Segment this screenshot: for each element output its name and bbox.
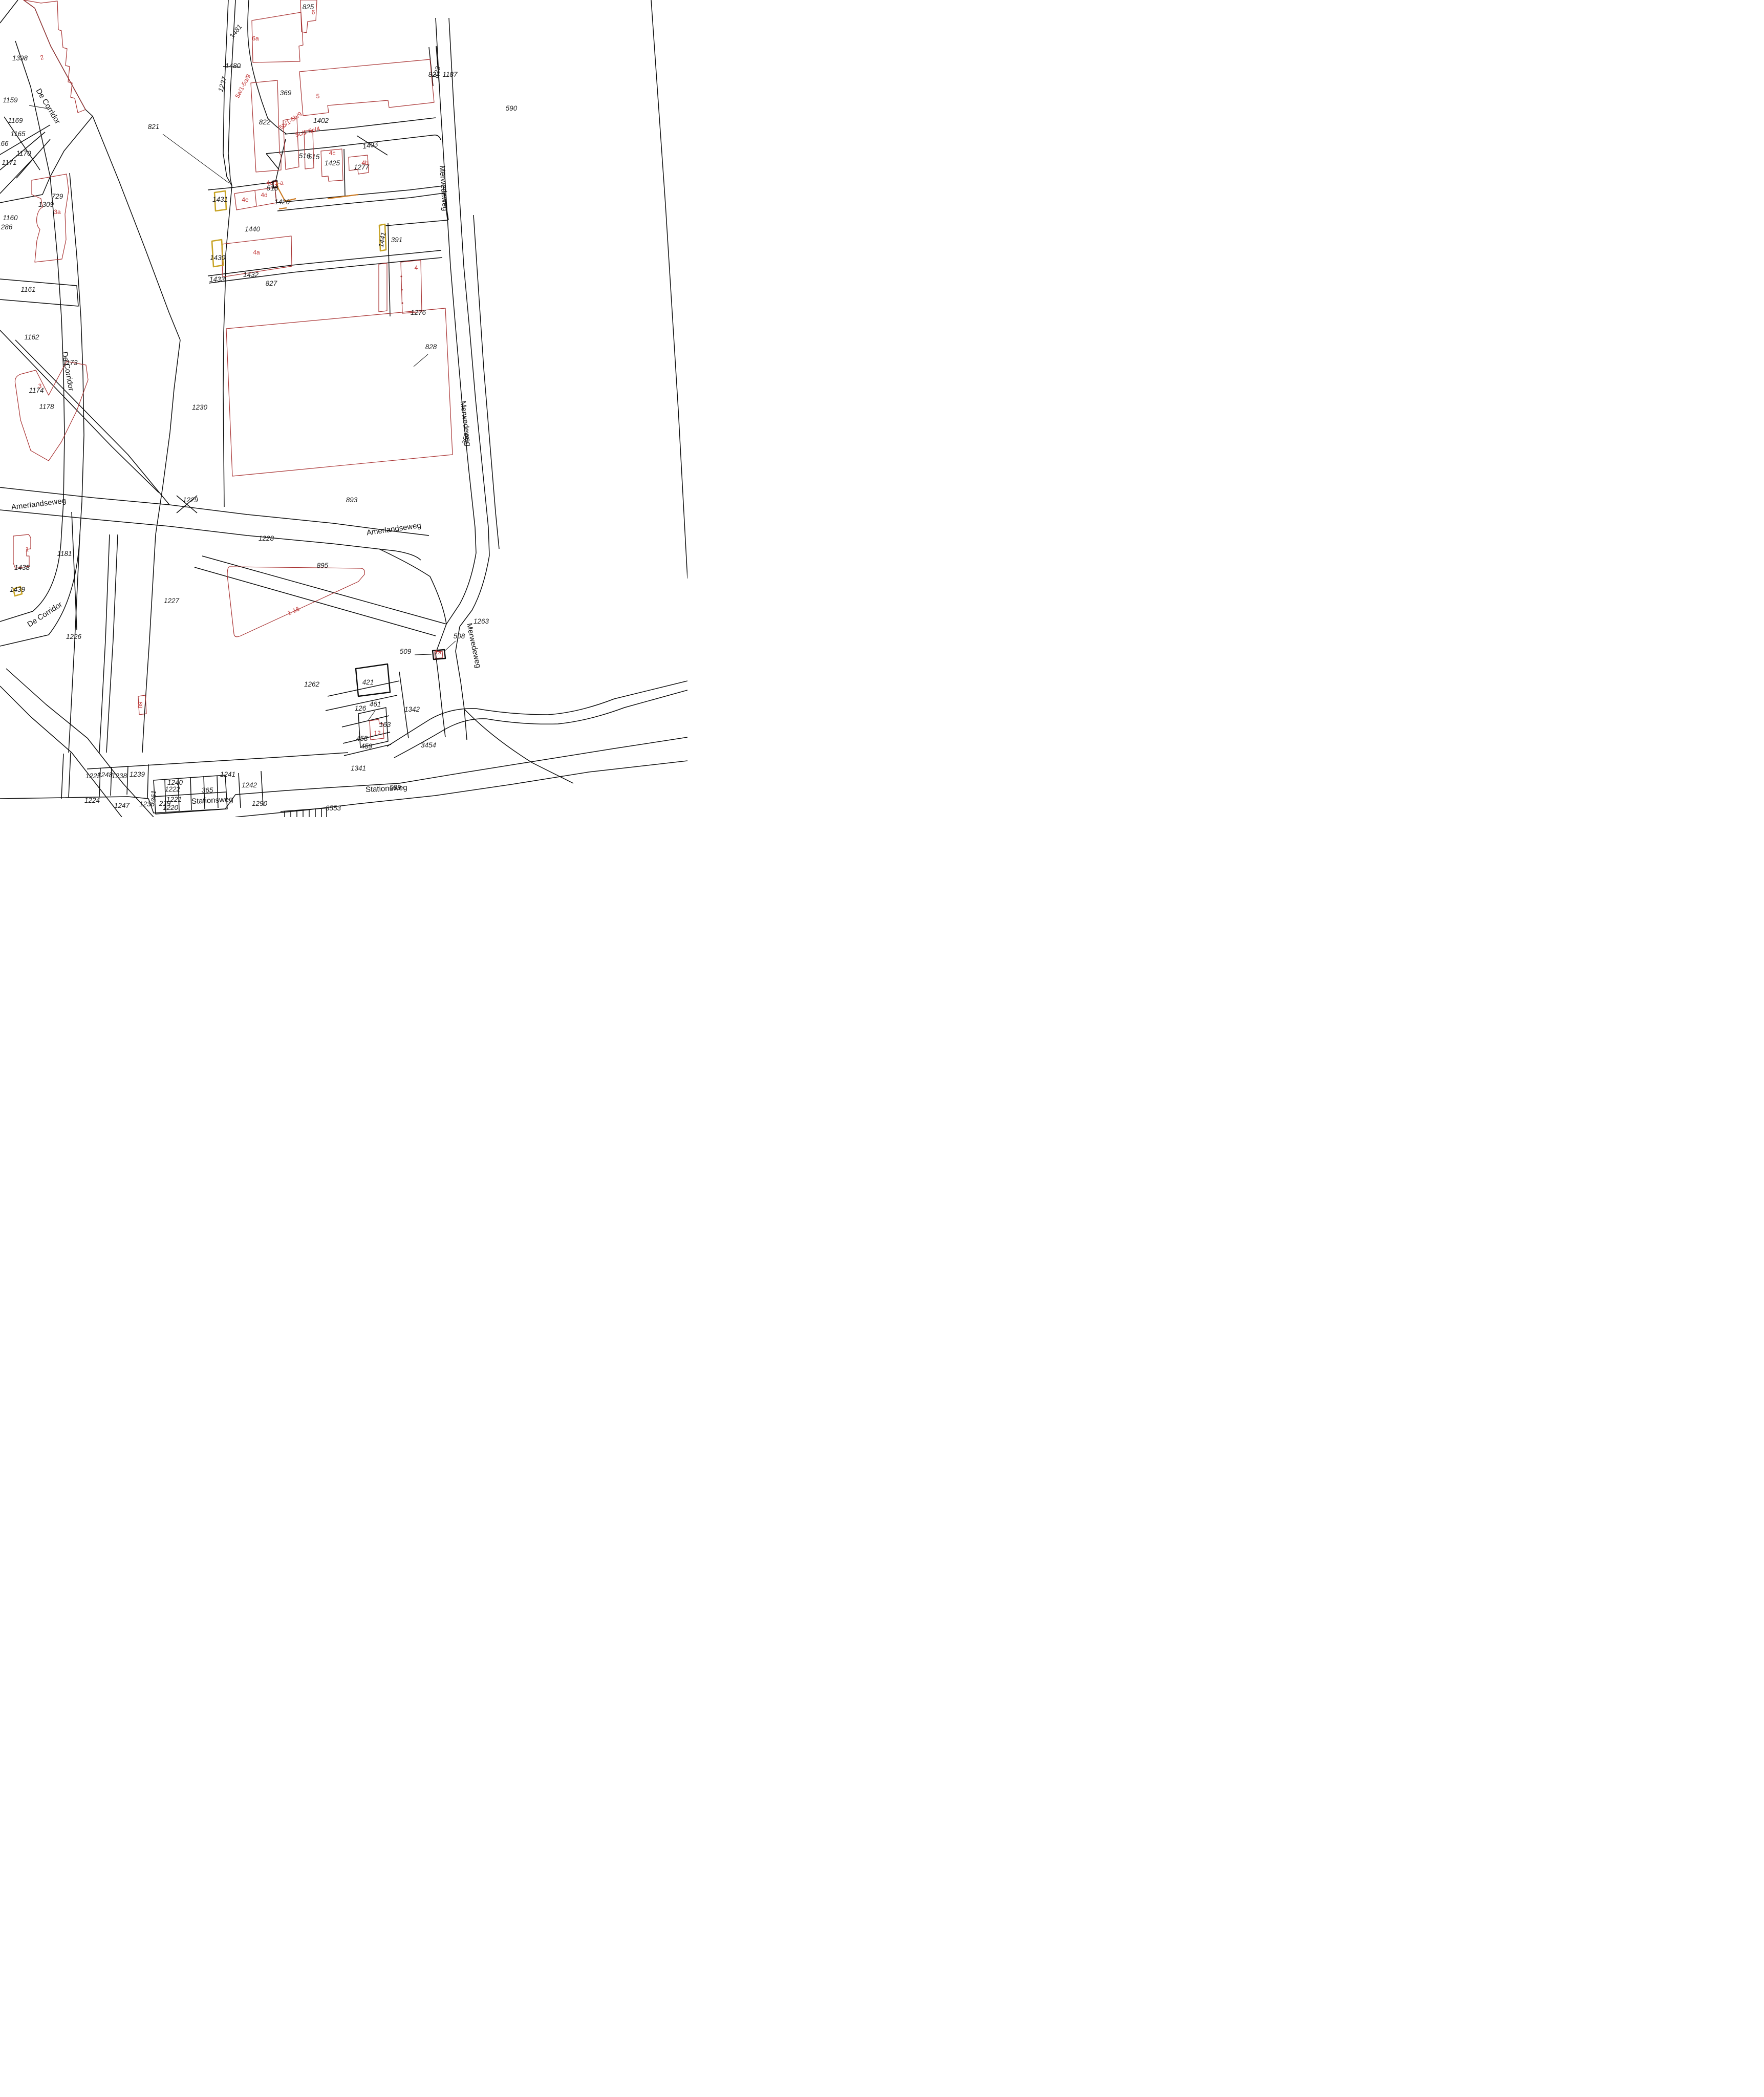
parcel-number: 1239 xyxy=(130,771,145,778)
parcel-number: 1222 xyxy=(165,785,181,793)
parcel-number: 421 xyxy=(362,678,374,686)
parcel-number: 590 xyxy=(506,104,518,112)
parcel-number: 1227 xyxy=(164,597,180,605)
parcel-number: 1247 xyxy=(114,802,130,809)
house-number: 6 xyxy=(312,9,315,16)
parcel-number: 1342 xyxy=(404,705,420,713)
parcel-number: 1262 xyxy=(304,680,320,688)
parcel-number: 1276 xyxy=(411,309,426,316)
parcel-number: 1430 xyxy=(210,254,226,262)
parcel-number: 1181 xyxy=(57,550,72,558)
house-number: 1a xyxy=(435,649,442,656)
parcel-number: 1160 xyxy=(3,214,18,222)
parcel-number: 1170 xyxy=(16,149,31,157)
parcel-number: 821 xyxy=(148,123,160,131)
parcel-number: 1224 xyxy=(84,797,100,804)
parcel-number: 1228 xyxy=(259,534,274,542)
parcel-number: 1263 xyxy=(474,617,489,625)
parcel-number: 1402 xyxy=(313,117,329,124)
house-number: 4 xyxy=(415,264,418,271)
parcel-number: 515 xyxy=(308,153,320,161)
parcel-number: 509 xyxy=(400,648,412,655)
parcel-number: 1229 xyxy=(183,496,199,504)
house-number: 4b xyxy=(361,159,369,166)
parcel-number: 1171 xyxy=(2,159,16,166)
parcel-number: 1425 xyxy=(325,159,340,167)
parcel-number: 1241 xyxy=(220,771,235,778)
house-number: 5 xyxy=(316,93,320,100)
parcel-number: 126 xyxy=(355,704,367,712)
parcel-number: 1431 xyxy=(212,196,228,203)
parcel-number: 1248 xyxy=(97,771,113,779)
parcel-number: 1236 xyxy=(139,800,155,808)
house-number: 3a xyxy=(54,208,61,216)
parcel-number: 1440 xyxy=(245,225,261,233)
survey-dot xyxy=(401,289,402,290)
parcel-number: 365 xyxy=(202,786,213,794)
house-number: 4a xyxy=(253,249,260,256)
parcel-number: 1290 xyxy=(252,800,268,807)
parcel-number: 163 xyxy=(379,721,391,729)
parcel-number: 1432 xyxy=(243,271,259,279)
parcel-number: 1230 xyxy=(192,403,208,411)
parcel-number: 1480 xyxy=(225,62,241,70)
parcel-number: 828 xyxy=(425,343,437,351)
parcel-number: 1341 xyxy=(351,764,366,772)
parcel-number: 1161 xyxy=(20,286,35,293)
parcel-number: 1238 xyxy=(112,772,127,780)
parcel-number: 822 xyxy=(259,118,271,126)
cadastral-map: 1398115911691165116611701171729130911602… xyxy=(0,0,687,817)
house-number: 1 xyxy=(26,546,29,553)
parcel-number: 391 xyxy=(391,236,403,244)
parcel-number: 3454 xyxy=(421,741,436,749)
house-number: 4e xyxy=(242,196,249,203)
parcel-number: 458 xyxy=(356,735,368,742)
parcel-number: 729 xyxy=(52,192,63,200)
parcel-number: 1438 xyxy=(14,564,30,571)
parcel-number: 1242 xyxy=(242,781,257,789)
house-number: 4c/1-a xyxy=(266,179,284,186)
parcel-number: 1220 xyxy=(163,804,179,811)
survey-dot xyxy=(401,302,403,304)
parcel-number: 895 xyxy=(317,562,329,569)
parcel-number: 1439 xyxy=(10,586,26,593)
parcel-number: 1226 xyxy=(66,633,82,640)
parcel-number: 1165 xyxy=(10,130,26,138)
parcel-number: 286 xyxy=(1,223,13,231)
parcel-number: 1426 xyxy=(274,198,290,206)
parcel-number: 1169 xyxy=(8,117,23,124)
parcel-number: 827 xyxy=(266,280,277,287)
house-number: 4c xyxy=(329,149,336,157)
house-number: 89 xyxy=(137,701,144,709)
house-number: 6a xyxy=(252,35,259,42)
map-background xyxy=(0,0,687,817)
house-number: 4d xyxy=(261,191,267,199)
parcel-number: 459 xyxy=(361,742,373,750)
parcel-number: 1398 xyxy=(12,54,28,62)
cadastral-map-viewport[interactable]: 1398115911691165116611701171729130911602… xyxy=(0,0,687,817)
parcel-number: 1162 xyxy=(24,333,39,341)
parcel-number: 1433 xyxy=(209,275,225,283)
house-number: 12 xyxy=(374,730,381,737)
parcel-number: 369 xyxy=(280,89,292,97)
parcel-number: 1178 xyxy=(39,403,54,411)
parcel-number: 3553 xyxy=(326,804,341,812)
parcel-number: 508 xyxy=(454,632,465,640)
parcel-number: 893 xyxy=(346,496,358,504)
parcel-number: 461 xyxy=(370,700,381,708)
parcel-number: 1187 xyxy=(442,71,458,78)
house-number: 3 xyxy=(38,382,42,390)
parcel-number: 1309 xyxy=(38,201,54,208)
survey-dot xyxy=(400,275,402,277)
parcel-number: 1166 xyxy=(0,140,9,147)
parcel-number: 1159 xyxy=(3,96,18,104)
